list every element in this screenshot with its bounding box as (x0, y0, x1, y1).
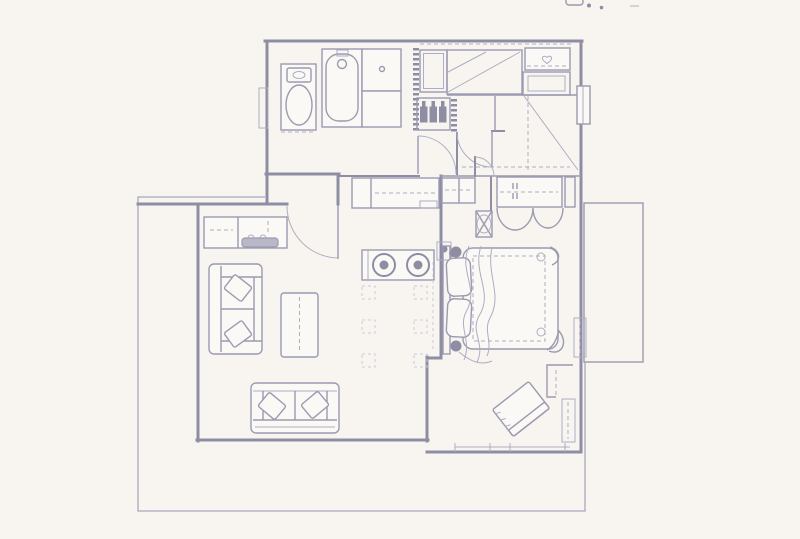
faint-mark-1 (362, 286, 375, 299)
lounger-body (492, 381, 549, 436)
floor-plan-image (0, 0, 800, 539)
faint-mark-3 (362, 354, 375, 367)
bed-post-2 (451, 341, 462, 352)
balcony-annex (584, 203, 643, 362)
curtain-swags (497, 208, 563, 230)
bedroom-notch-outline (547, 365, 573, 397)
faint-mark-2 (362, 320, 375, 333)
faint-mark-6 (414, 354, 427, 367)
vanity-cabinet (362, 91, 401, 127)
bed-pillow-2 (446, 298, 472, 337)
closet-sliding-diagonal (524, 96, 578, 170)
north-icon-tray (566, 0, 583, 5)
faint-mark-5 (414, 320, 427, 333)
washing-machine-drum (424, 54, 444, 89)
north-icon-dot-1 (587, 4, 591, 8)
bottle-1-neck (423, 102, 426, 108)
bottle-2 (430, 107, 437, 122)
hob-burner-1-center (380, 261, 389, 270)
bath-door-arc (418, 136, 456, 174)
mirror-cabinet (523, 72, 570, 95)
hob-burner-2-center (414, 261, 423, 270)
sideboard-sink-tray (242, 238, 278, 247)
vanity-top (362, 49, 401, 91)
washing-machine (420, 50, 447, 92)
mirror-inner (528, 76, 565, 91)
living-door-arc (287, 206, 338, 258)
heart-cabinet (525, 48, 570, 70)
bottle-2-neck (432, 102, 435, 108)
laundry-counter-diag-1 (448, 52, 520, 92)
north-icon-dot-2 (600, 6, 604, 10)
laundry-counter-diag-2 (448, 52, 486, 72)
bed-post-1 (451, 247, 462, 258)
bottle-1 (421, 107, 428, 122)
wardrobe-side-cell (565, 177, 575, 207)
bottle-3-neck (442, 102, 445, 108)
faint-mark-4 (414, 286, 427, 299)
bottle-3 (440, 107, 447, 122)
floor-plan-canvas (0, 0, 800, 539)
